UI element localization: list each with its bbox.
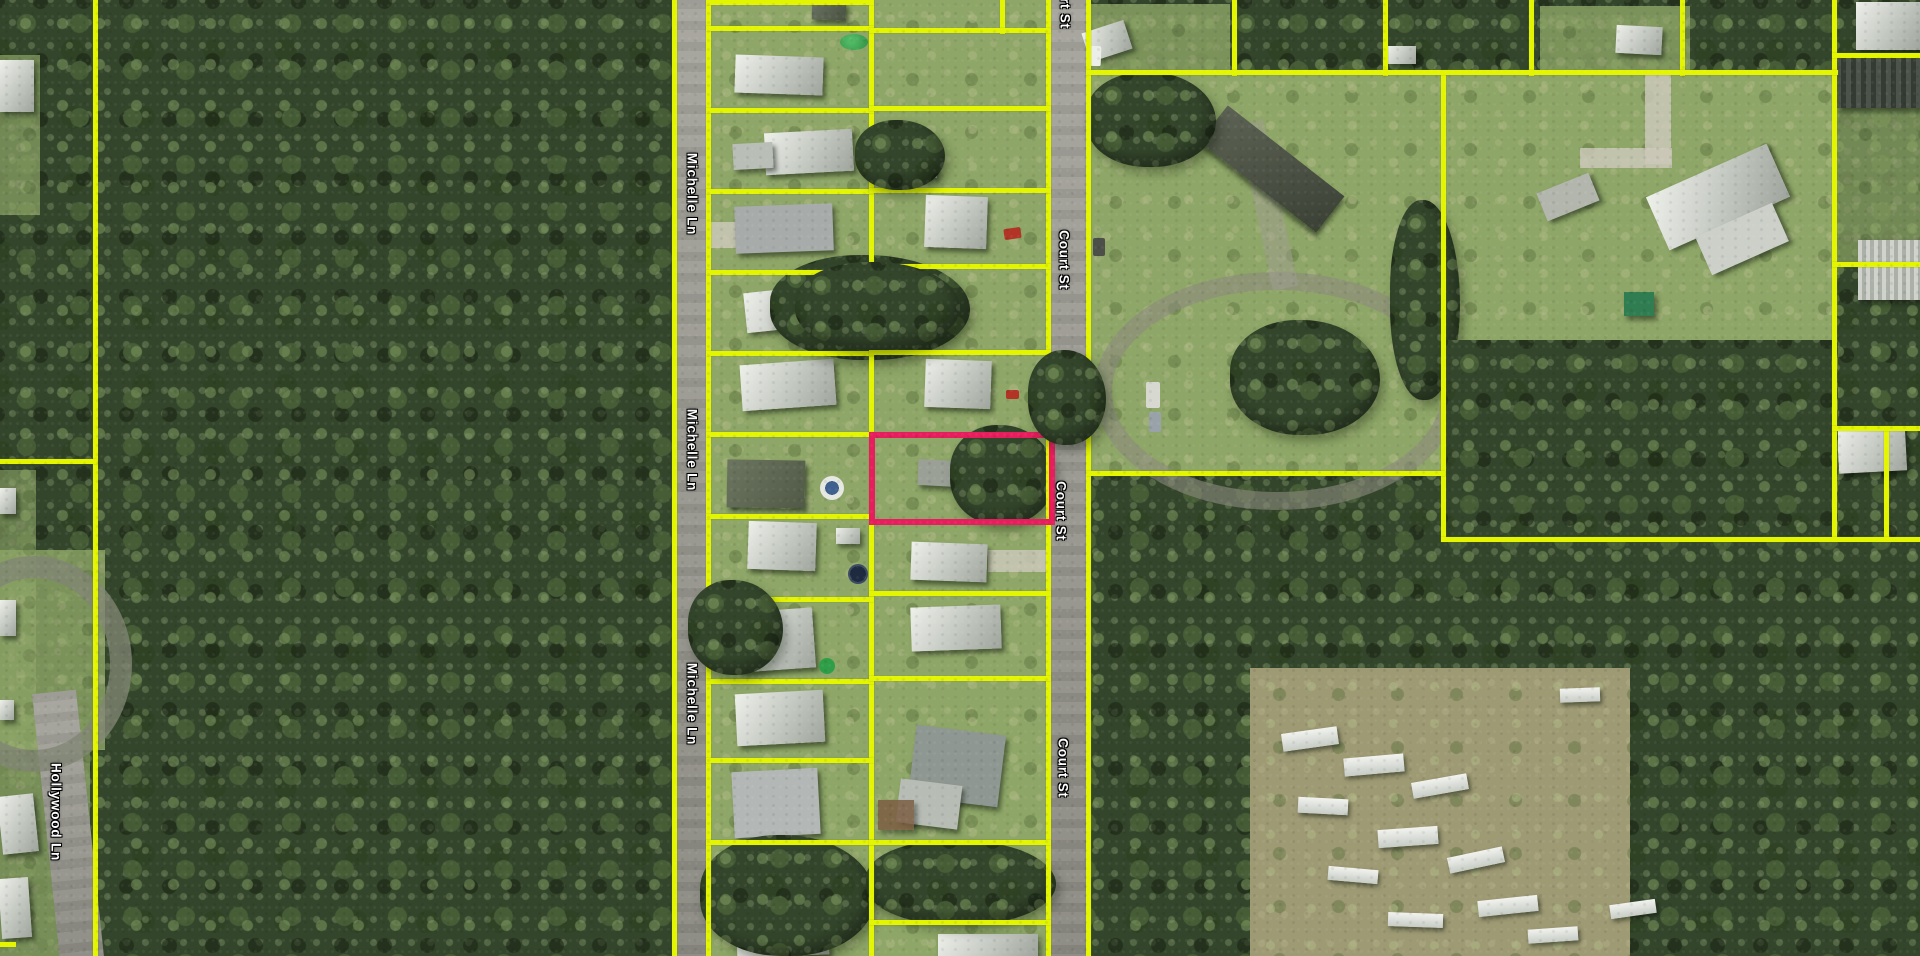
parcel-line [706,0,874,5]
rv-trailer [1388,912,1443,928]
mobile-home [747,521,817,571]
parcel-line [706,351,874,356]
shed [836,528,860,544]
parcel-line [1086,0,1091,956]
tree-clump [1086,72,1216,167]
red-car [1006,390,1019,399]
parcel-line [1383,0,1388,76]
pool [820,476,844,500]
tree-clump [1230,320,1380,435]
parcel-line [706,679,874,684]
mobile-home [910,604,1001,651]
rv-trailer [1560,687,1600,702]
street-label-court-st: Court St [1056,738,1071,798]
parcel-line [1529,0,1534,76]
driveway [1580,148,1672,168]
mobile-home [0,600,16,636]
mobile-home [0,488,16,514]
red-car [1003,227,1021,240]
tree-clump [700,835,875,956]
lawn-patch [1540,6,1690,70]
white-truck [1146,382,1160,408]
mobile-home [764,129,854,176]
parcel-line [869,676,1051,681]
street-label-michelle-ln: Michelle Ln [685,153,700,235]
rv-trailer [1298,797,1349,816]
parcel-line [0,459,97,464]
house [924,195,988,249]
mobile-home [0,793,39,854]
parcel-line [1832,0,1837,542]
parcel-line [869,920,1051,925]
parcel-line [706,189,874,194]
tree-clump [855,120,945,190]
parcel-line [672,0,677,956]
hollywood-loop-road [0,556,132,772]
parcel-line [706,432,874,437]
parcel-line [93,0,98,956]
parcel-line [706,514,874,519]
parcel-line [1086,70,1838,75]
driveway [708,222,738,248]
street-label-michelle-ln: Michelle Ln [685,409,700,491]
parcel-line [1441,537,1920,542]
highlighted-parcel[interactable] [869,432,1055,525]
parcel-line [869,840,1051,845]
parcel-line [1832,262,1920,267]
street-label-michelle-ln: Michelle Ln [685,663,700,745]
woods [1443,340,1838,540]
street-label-court-st: Court St [1054,481,1069,541]
mobile-home [0,60,34,112]
driveway [988,550,1048,572]
parcel-line [1832,426,1920,431]
parcel-line [706,0,711,956]
mobile-home [0,700,14,720]
aerial-map[interactable]: Michelle Ln Michelle Ln Michelle Ln Cour… [0,0,1920,956]
tree-clump [688,580,783,675]
tree-clump [795,262,960,350]
house [1837,426,1907,473]
mobile-home [740,359,837,411]
parcel-line [869,591,1051,596]
parcel-line [1680,0,1685,76]
house [910,542,987,583]
trampoline [848,564,868,584]
mobile-home [0,877,32,939]
house [731,768,820,838]
parcel-line [706,840,874,845]
building [1856,2,1920,50]
parcel-line [1232,0,1237,76]
mobile-home [938,934,1038,956]
road-court-st [1050,0,1088,956]
shed [1388,46,1416,64]
shed [1615,25,1662,55]
shed [878,800,914,830]
parcel-line [706,26,874,31]
green-tank [819,658,835,674]
parcel-line [706,108,874,113]
parcel-line [0,942,16,947]
street-label-court-st: Court St [1057,230,1072,290]
house [734,203,834,253]
dark-car [1093,238,1105,256]
mobile-home [734,54,823,95]
parcel-line [869,28,1051,33]
parcel-line [1832,53,1920,58]
house [727,459,806,508]
green-shed [1624,292,1654,316]
gray-car [1149,412,1161,432]
tree-clump [1028,350,1106,445]
street-label-court-st-partial: Court St [1058,0,1073,29]
house [924,359,992,409]
building [1858,240,1920,300]
parcel-line [706,758,874,763]
parcel-line [1086,471,1445,476]
street-label-hollywood-ln: Hollywood Ln [49,763,64,861]
tree-clump [866,840,1056,925]
building [1836,58,1920,108]
mobile-home [735,690,826,747]
shed [732,142,773,170]
pool [840,34,868,50]
parcel-line [1884,426,1889,542]
parcel-line [869,106,1051,111]
parcel-line [869,350,1051,355]
